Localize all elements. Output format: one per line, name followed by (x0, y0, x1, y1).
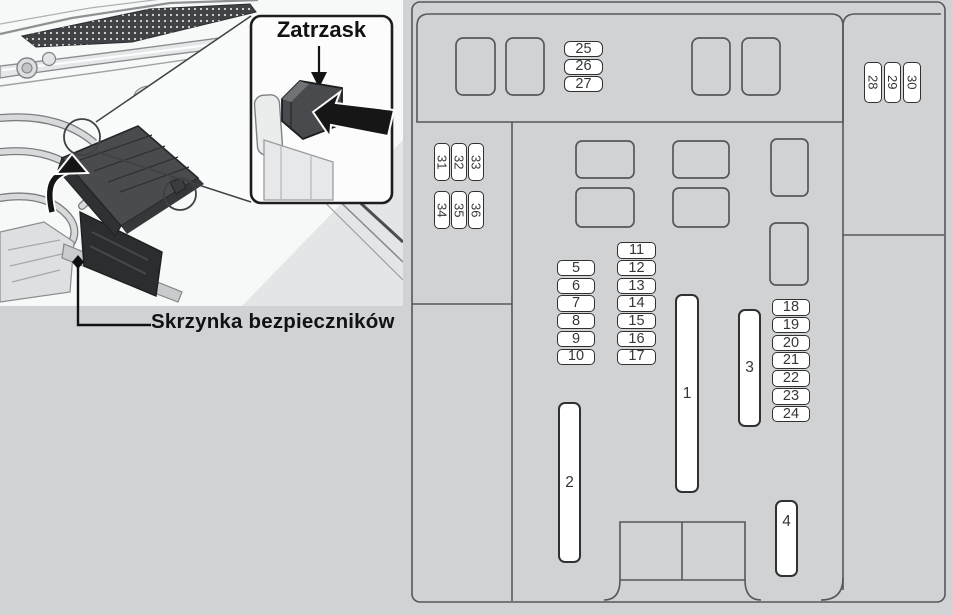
manual-page: 2526272829303132333435365678910111213141… (0, 0, 953, 615)
fuse-30: 30 (903, 62, 921, 103)
fuse-33: 33 (468, 143, 484, 181)
fuse-9: 9 (557, 331, 595, 347)
fuse-8: 8 (557, 313, 595, 329)
latch-callout-label: Zatrzask (253, 17, 390, 43)
fuse-box-caption: Skrzynka bezpieczników (151, 310, 395, 334)
fuse-25: 25 (564, 41, 603, 57)
fuse-label: 2 (565, 475, 574, 491)
fuse-29: 29 (884, 62, 902, 103)
fuse-24: 24 (772, 406, 810, 423)
fuse-4: 4 (775, 500, 798, 577)
fuse-32: 32 (451, 143, 467, 181)
fuse-16: 16 (617, 331, 656, 347)
fuse-11: 11 (617, 242, 656, 258)
fuse-diagram: 2526272829303132333435365678910111213141… (0, 0, 953, 615)
fuse-15: 15 (617, 313, 656, 329)
fuse-1: 1 (675, 294, 699, 493)
fuse-20: 20 (772, 335, 810, 352)
fuse-10: 10 (557, 349, 595, 365)
fuse-label: 1 (683, 386, 692, 402)
fuse-12: 12 (617, 260, 656, 276)
fuse-35: 35 (451, 191, 467, 229)
fuse-17: 17 (617, 349, 656, 365)
fuse-26: 26 (564, 59, 603, 75)
fuse-label: 3 (745, 360, 754, 376)
fuse-19: 19 (772, 317, 810, 334)
fuse-7: 7 (557, 295, 595, 311)
fuse-21: 21 (772, 352, 810, 369)
fuse-14: 14 (617, 295, 656, 311)
fuse-2: 2 (558, 402, 581, 563)
fuse-28: 28 (864, 62, 882, 103)
fuse-23: 23 (772, 388, 810, 405)
fuse-31: 31 (434, 143, 450, 181)
fuse-3: 3 (738, 309, 761, 427)
fuse-18: 18 (772, 299, 810, 316)
fuse-6: 6 (557, 278, 595, 294)
fuse-27: 27 (564, 76, 603, 92)
fuse-5: 5 (557, 260, 595, 276)
fuse-13: 13 (617, 278, 656, 294)
fuse-22: 22 (772, 370, 810, 387)
fuse-label: 4 (782, 514, 791, 530)
fuse-34: 34 (434, 191, 450, 229)
fuse-36: 36 (468, 191, 484, 229)
